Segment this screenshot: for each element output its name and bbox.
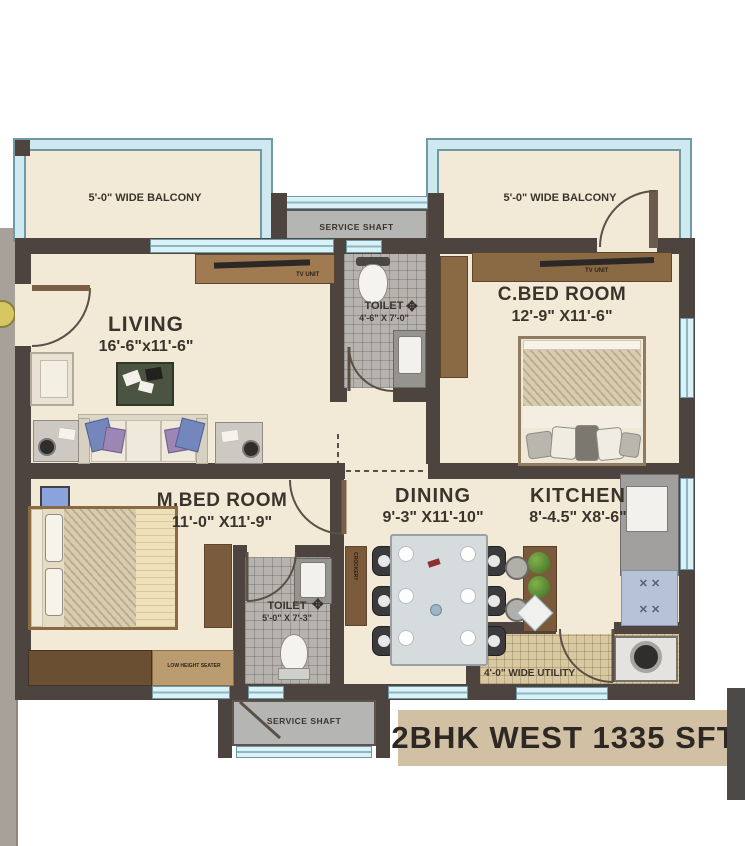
toilet1-window <box>346 240 382 253</box>
mbed-wardrobe <box>204 544 232 628</box>
mbed-pillow-2 <box>45 568 63 616</box>
sofa-seat-2 <box>126 420 161 462</box>
toilet1-label: TOILET 4'-6" X 7'-0" <box>334 300 434 324</box>
kitchen-hob: ✕ ✕✕ ✕ <box>621 570 678 626</box>
low-height-unit-dark <box>28 650 152 686</box>
dining-deco-2 <box>430 604 442 616</box>
cbed-pillow-5 <box>618 432 641 459</box>
wall-mid-left <box>15 463 345 479</box>
cbed-balcony-door-leaf <box>649 190 658 248</box>
cbed-blanket <box>523 350 641 406</box>
sofa-cushion-purple-left <box>102 426 126 453</box>
adjacent-unit-wall <box>727 688 745 800</box>
cbed-window <box>680 318 694 398</box>
low-height-unit-label: LOW HEIGHT SEATER <box>156 663 232 669</box>
toilet1-basin <box>398 336 422 374</box>
balcony-left-label: 5'-0" WIDE BALCONY <box>60 192 230 205</box>
living-label: LIVING 16'-6"x11'-6" <box>46 312 246 356</box>
tv-unit-cbed-label: TV UNIT <box>585 268 608 274</box>
toilet2-label: TOILET 5'-0" X 7'-3" <box>237 600 337 624</box>
floor-plan: 5'-0" WIDE BALCONY 5'-0" WIDE BALCONY SE… <box>0 0 745 846</box>
speaker-right <box>242 440 260 458</box>
dining-plate-5 <box>460 588 476 604</box>
service-shaft-top-vent <box>285 196 428 209</box>
kitchen-plant-1 <box>528 552 550 574</box>
utility-door-gap <box>556 622 614 634</box>
mbed-label: M.BED ROOM 11'-0" X11'-9" <box>122 490 322 532</box>
dining-plate-6 <box>460 630 476 646</box>
mbed-pillow-1 <box>45 514 63 562</box>
mbed-window <box>152 686 230 699</box>
toilet2-wc-tank <box>278 668 310 680</box>
shaft-bottom-wall-left <box>218 700 232 758</box>
balcony-right-label: 5'-0" WIDE BALCONY <box>475 192 645 205</box>
washing-machine-drum <box>630 641 662 673</box>
tv-unit-living-label: TV UNIT <box>296 272 319 278</box>
kitchen-stool-1 <box>505 556 529 580</box>
mbed-headboard <box>31 509 43 627</box>
entry-door-gap <box>15 284 31 346</box>
cbed-bed-headrail <box>523 340 641 350</box>
dining-plate-1 <box>398 546 414 562</box>
utility-window <box>516 687 608 700</box>
crockery-unit-label: CROCKERY <box>352 552 358 580</box>
title-banner: 2BHK WEST 1335 SFT <box>398 710 730 766</box>
toilet1-wc-bowl <box>358 264 388 304</box>
utility-label: 4'-0" WIDE UTILITY <box>484 668 575 680</box>
toilet2-wc-bowl <box>280 634 308 672</box>
dining-window <box>388 686 468 699</box>
dining-plate-3 <box>398 630 414 646</box>
dining-plate-2 <box>398 588 414 604</box>
book-right <box>220 429 239 443</box>
kitchen-window <box>680 478 694 570</box>
wall-toilet1-right <box>426 254 440 464</box>
toilet2-basin <box>300 562 326 598</box>
kitchen-label: KITCHEN 8'-4.5" X8'-6" <box>478 484 678 527</box>
title-banner-text: 2BHK WEST 1335 SFT <box>391 720 736 756</box>
speaker-left <box>38 438 56 456</box>
toilet1-door-gap <box>347 388 393 402</box>
book-left <box>57 427 76 441</box>
tv-unit-living <box>195 254 335 284</box>
service-shaft-top-label: SERVICE SHAFT <box>290 222 423 232</box>
toilet2-window <box>248 686 284 699</box>
service-shaft-bottom-label: SERVICE SHAFT <box>237 716 371 726</box>
dining-plate-4 <box>460 546 476 562</box>
kitchen-plant-2 <box>528 576 550 598</box>
toilet2-door-gap <box>247 545 295 557</box>
balcony-left <box>15 140 271 240</box>
cbed-label: C.BED ROOM 12'-9" X11'-6" <box>462 284 662 326</box>
service-shaft-bottom-vent <box>236 746 372 758</box>
armchair-seat <box>40 360 68 398</box>
shaft-bottom-wall-right <box>376 700 390 758</box>
balcony-corner-block <box>15 140 30 156</box>
living-window <box>150 239 334 253</box>
